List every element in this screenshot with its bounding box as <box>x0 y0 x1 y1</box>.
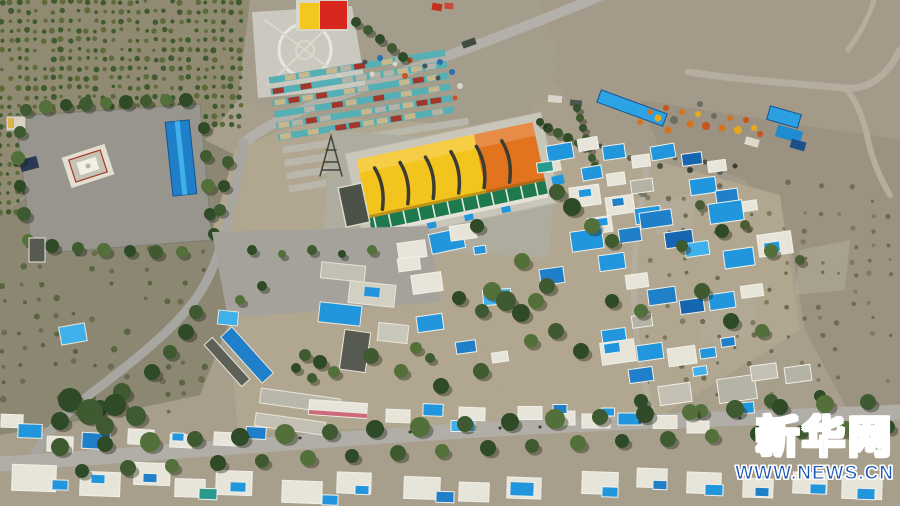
sign-red-panel <box>320 1 347 29</box>
roadside-south-strip <box>199 488 217 500</box>
yard-machinery <box>679 109 685 115</box>
school-buildings <box>217 310 238 326</box>
left-road-trees <box>214 204 226 216</box>
village-trees <box>584 218 600 234</box>
truck-white <box>548 95 563 103</box>
hall-poplars <box>553 128 563 138</box>
school-trees <box>328 366 340 378</box>
yard-poplar-row <box>573 104 581 112</box>
yard-machinery <box>670 116 678 124</box>
yard-poplar-row <box>579 124 587 132</box>
roadside-south-strip <box>602 487 618 498</box>
road-trees-north <box>97 436 113 452</box>
village-trees <box>634 304 648 318</box>
road-trees-south <box>210 455 226 471</box>
village-trees <box>363 348 379 364</box>
yard-machinery <box>743 117 749 123</box>
village-trees <box>549 184 565 200</box>
road-trees-south <box>881 420 895 434</box>
village-south-cluster <box>720 337 735 348</box>
village-south-cluster <box>750 363 778 381</box>
village-trees <box>563 198 581 216</box>
staging-equipment <box>423 64 428 69</box>
village-ne-hall-cluster <box>618 227 642 244</box>
road-trees-north <box>410 417 430 437</box>
roadside-south-strip <box>857 488 875 500</box>
road-trees-north <box>501 413 519 431</box>
roadside-south-strip <box>91 474 105 483</box>
road-trees-north <box>726 400 744 418</box>
plaza-poplars <box>375 34 385 44</box>
left-road-trees <box>144 364 160 380</box>
village-south-cluster <box>699 347 716 359</box>
village-east-cluster <box>708 200 744 225</box>
compound-perimeter-trees <box>149 245 163 259</box>
school-trees <box>425 353 435 363</box>
compound-perimeter-trees <box>124 245 136 257</box>
yard-equipment-dark <box>687 167 693 173</box>
village-trees <box>539 278 555 294</box>
plaza-poplars <box>363 25 373 35</box>
village-mid-cluster <box>491 351 508 363</box>
hill-shrubs <box>795 255 805 265</box>
roadside-north-strip <box>687 421 709 433</box>
road-trees-south <box>795 425 809 439</box>
yard-machinery <box>727 115 733 121</box>
compound-perimeter-trees <box>198 122 210 134</box>
roadside-north-strip <box>423 404 443 417</box>
compound-perimeter-trees <box>45 239 59 253</box>
village-trees <box>475 304 489 318</box>
road-vehicles <box>739 417 742 420</box>
staging-equipment <box>370 72 375 77</box>
yard-equipment-dark <box>733 164 738 169</box>
left-road-trees <box>218 180 230 192</box>
school-trees <box>299 349 311 361</box>
village-east-cluster <box>740 284 763 299</box>
road-trees-north <box>682 404 698 420</box>
aerial-scene <box>0 0 900 506</box>
yard-machinery <box>655 115 662 122</box>
village-south-cluster <box>667 345 697 367</box>
compound-perimeter-trees <box>176 246 188 258</box>
village-trees <box>755 324 769 338</box>
village-trees <box>573 343 589 359</box>
road-trees-north <box>322 424 338 440</box>
staging-equipment <box>402 73 408 79</box>
roadside-south-strip <box>510 482 534 497</box>
village-north-cluster <box>681 152 702 167</box>
road-trees-north <box>51 438 69 456</box>
road-trees-south <box>300 450 316 466</box>
village-trees <box>548 323 564 339</box>
compound-perimeter-trees <box>79 97 93 111</box>
village-trees <box>694 283 710 299</box>
yard-poplar-row <box>588 154 596 162</box>
plaza-poplars <box>398 52 408 62</box>
road-trees-north <box>772 399 788 415</box>
yard-machinery <box>751 125 757 131</box>
village-south-cluster <box>636 342 664 361</box>
village-mid-cluster <box>397 256 421 272</box>
staging-equipment <box>453 96 458 101</box>
road-trees-north <box>140 432 160 452</box>
left-road-trees <box>178 324 194 340</box>
village-mid-cluster <box>455 340 476 355</box>
village-east-cluster <box>723 247 755 269</box>
roadside-north-strip <box>518 407 542 420</box>
road-trees-north <box>187 431 203 447</box>
road-vehicles <box>299 437 302 440</box>
hill-shrubs <box>695 200 705 210</box>
roadside-south-strip <box>282 480 323 503</box>
hill-shrubs <box>740 220 750 230</box>
yard-machinery <box>702 122 710 130</box>
compound-perimeter-trees <box>119 95 133 109</box>
yard-machinery <box>695 111 701 117</box>
staging-equipment <box>377 55 383 61</box>
village-trees <box>723 313 739 329</box>
village-mid-cluster <box>416 313 444 332</box>
village-east-cluster <box>598 252 626 271</box>
roadside-south-strip <box>755 487 769 496</box>
roadside-south-strip <box>143 473 157 482</box>
hall-poplars <box>536 118 544 126</box>
road-trees-south <box>345 449 359 463</box>
yard-machinery <box>697 101 703 107</box>
village-ne-hall-cluster <box>578 188 592 198</box>
village-south-cluster <box>603 342 620 354</box>
roadside-south-strip <box>705 484 723 496</box>
road-vehicles <box>639 421 642 424</box>
sign-yellow-panel <box>300 3 319 29</box>
roadside-south-strip <box>12 464 57 492</box>
red-truck <box>444 3 453 10</box>
left-road-trees <box>189 305 203 319</box>
compound-perimeter-trees <box>72 242 84 254</box>
yard-machinery <box>711 113 717 119</box>
village-trees <box>433 378 449 394</box>
compound-perimeter-trees <box>39 100 53 114</box>
village-trees <box>676 240 688 252</box>
village-east-cluster <box>625 273 649 290</box>
yard-machinery <box>663 105 669 111</box>
road-trees-south <box>120 460 136 476</box>
village-ne-hall-cluster <box>612 197 625 207</box>
yard-machinery <box>665 127 672 134</box>
village-trees <box>496 291 516 311</box>
road-trees-south <box>165 459 179 473</box>
village-south-cluster <box>784 364 812 383</box>
village-trees <box>452 291 466 305</box>
scrub-house <box>29 238 45 262</box>
road-trees-south <box>75 464 89 478</box>
village-north-cluster <box>631 154 650 168</box>
left-road-trees <box>163 345 177 359</box>
village-trees <box>764 244 778 258</box>
compound-perimeter-trees <box>11 151 25 165</box>
roadside-south-strip <box>436 491 454 503</box>
village-north-cluster <box>630 178 654 194</box>
village-trees <box>470 219 484 233</box>
road-trees-south <box>615 434 629 448</box>
road-trees-south <box>570 435 586 451</box>
school-buildings <box>377 322 409 343</box>
yard-machinery <box>647 109 653 115</box>
compound-perimeter-trees <box>179 93 193 107</box>
staging-equipment <box>393 62 398 67</box>
gate-building-yellow <box>8 118 14 128</box>
village-north-cluster <box>602 144 626 161</box>
roadside-north-strip <box>18 424 42 439</box>
compound-perimeter-trees <box>97 243 111 257</box>
road-trees-north <box>592 409 608 425</box>
staging-equipment <box>457 83 463 89</box>
school-trees <box>367 245 377 255</box>
garden-tree-cluster <box>51 412 69 430</box>
village-trees <box>512 304 530 322</box>
staging-equipment <box>437 59 443 65</box>
village-north-cluster <box>581 165 603 181</box>
village-trees <box>514 253 530 269</box>
school-trees <box>278 250 286 258</box>
village-trees <box>528 293 544 309</box>
roadside-south-strip <box>404 476 441 499</box>
road-trees-north <box>366 420 384 438</box>
roadside-south-strip <box>355 485 369 494</box>
village-trees <box>524 334 538 348</box>
road-trees-north <box>860 394 876 410</box>
roadside-north-strip <box>386 409 410 423</box>
road-trees-south <box>750 426 766 442</box>
school-trees <box>338 250 346 258</box>
school-buildings <box>318 302 362 326</box>
road-trees-north <box>816 395 834 413</box>
garden-tree-cluster <box>104 394 126 416</box>
road-vehicles <box>539 426 542 429</box>
garden-tree-cluster <box>126 406 146 426</box>
yard-machinery <box>719 125 726 132</box>
village-north-cluster <box>707 159 726 172</box>
school-trees <box>307 245 317 255</box>
left-road-trees <box>222 156 234 168</box>
plaza-poplars <box>387 43 397 53</box>
road-trees-south <box>838 421 854 437</box>
school-pool <box>364 287 380 298</box>
school-trees <box>235 295 245 305</box>
village-trees <box>715 224 729 238</box>
compound-perimeter-trees <box>201 179 215 193</box>
staging-equipment <box>363 60 368 65</box>
road-trees-south <box>480 440 496 456</box>
school-trees <box>291 363 301 373</box>
roadside-south-strip <box>52 480 68 491</box>
road-trees-south <box>435 444 449 458</box>
yard-machinery <box>687 121 694 128</box>
aerial-photo: 新华网 WWW.NEWS.CN <box>0 0 900 506</box>
yard-machinery <box>757 131 763 137</box>
road-trees-south <box>255 454 269 468</box>
road-trees-north <box>275 424 295 444</box>
road-trees-south <box>705 429 719 443</box>
village-mid-cluster <box>411 272 443 295</box>
village-south-cluster <box>628 366 654 383</box>
village-north-cluster <box>606 172 625 186</box>
village-trees <box>394 364 408 378</box>
village-trees <box>473 363 489 379</box>
road-trees-south <box>660 431 676 447</box>
compound-perimeter-trees <box>14 126 26 138</box>
village-north-cluster <box>689 176 717 195</box>
yard-machinery <box>734 126 742 134</box>
roadside-south-strip <box>810 484 826 495</box>
compound-perimeter-trees <box>20 104 32 116</box>
staging-equipment <box>436 76 441 81</box>
road-vehicles <box>499 427 502 430</box>
yard-poplar-row <box>576 114 584 122</box>
compound-perimeter-trees <box>60 99 72 111</box>
village-trees <box>605 294 619 308</box>
roadside-south-strip <box>322 495 338 506</box>
roadside-south-strip <box>653 480 667 489</box>
village-south-cluster <box>658 382 692 405</box>
village-mid-cluster <box>474 245 487 255</box>
school-trees <box>247 245 257 255</box>
village-east-cluster <box>647 286 677 306</box>
staging-equipment <box>449 69 455 75</box>
roadside-south-strip <box>230 482 246 493</box>
compound-perimeter-trees <box>17 207 31 221</box>
yard-machinery <box>637 119 643 125</box>
plaza-poplars <box>351 17 361 27</box>
road-vehicles <box>409 431 412 434</box>
roadside-south-strip <box>459 482 490 502</box>
village-south-cluster <box>692 366 707 377</box>
village-north-cluster <box>536 161 553 173</box>
school-trees <box>410 342 422 354</box>
compound-perimeter-trees <box>140 95 152 107</box>
yard-equipment-dark <box>657 163 663 169</box>
compound-perimeter-trees <box>200 150 212 162</box>
road-trees-north <box>231 428 249 446</box>
compound-perimeter-trees <box>160 94 172 106</box>
school-trees <box>307 373 317 383</box>
road-trees-north <box>636 405 654 423</box>
compound-perimeter-trees <box>100 97 112 109</box>
school-trees <box>257 281 267 291</box>
road-trees-south <box>525 439 539 453</box>
village-trees <box>605 234 619 248</box>
garden-tree-cluster <box>96 417 114 435</box>
compound-perimeter-trees <box>14 180 26 192</box>
roadside-north-strip <box>172 433 184 442</box>
monument-top <box>86 164 91 169</box>
road-trees-north <box>545 409 565 429</box>
scrub-blue-tarp <box>59 323 88 345</box>
road-trees-north <box>457 416 473 432</box>
school-trees <box>313 355 327 369</box>
road-trees-south <box>390 445 406 461</box>
